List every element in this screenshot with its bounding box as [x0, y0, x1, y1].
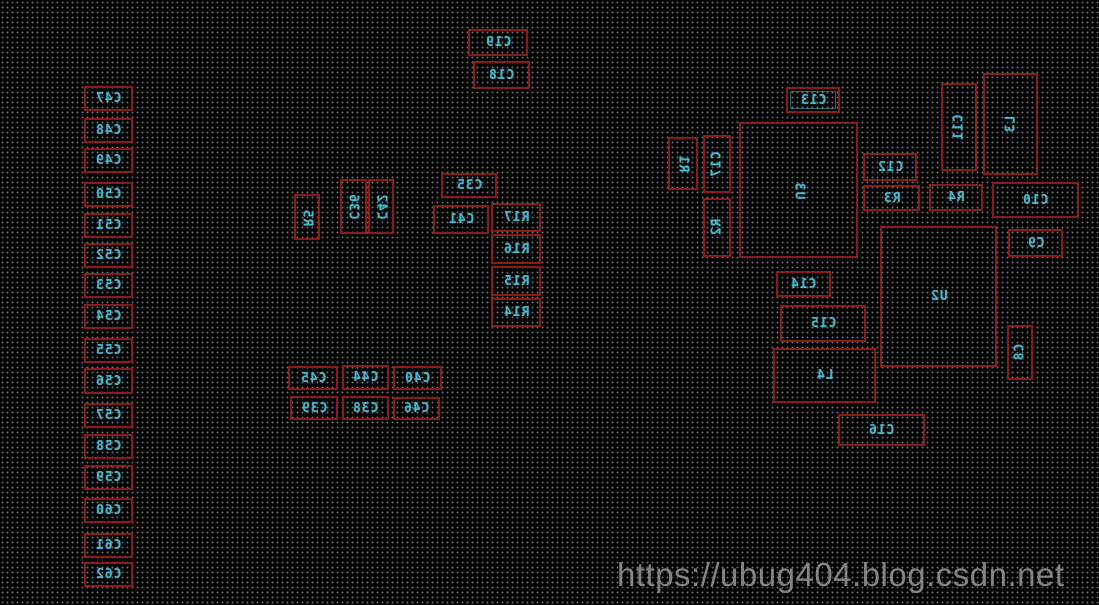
component-footprint-c40[interactable]: C40: [393, 366, 442, 390]
component-footprint-c56[interactable]: C56: [84, 368, 133, 394]
designator-label: C35: [456, 179, 482, 192]
designator-label: C39: [301, 402, 327, 415]
designator-label: C36: [347, 193, 360, 219]
designator-label: C44: [352, 371, 378, 384]
designator-label: C62: [95, 568, 121, 581]
component-footprint-c51[interactable]: C51: [84, 213, 133, 238]
component-footprint-c38[interactable]: C38: [342, 396, 389, 420]
component-footprint-c53[interactable]: C53: [84, 273, 133, 298]
component-footprint-c58[interactable]: C58: [84, 434, 133, 459]
designator-label: C46: [403, 402, 429, 415]
component-footprint-c49[interactable]: C49: [84, 148, 133, 173]
designator-label: L4: [816, 369, 834, 382]
designator-label: C51: [95, 219, 121, 232]
component-footprint-c62[interactable]: C62: [84, 562, 133, 587]
component-footprint-u3[interactable]: U3: [739, 122, 858, 258]
component-footprint-c39[interactable]: C39: [290, 396, 338, 420]
component-footprint-c36[interactable]: C36: [340, 179, 367, 234]
component-footprint-c10[interactable]: C10: [992, 182, 1079, 218]
component-footprint-c44[interactable]: C44: [342, 365, 389, 390]
component-footprint-l3[interactable]: L3: [983, 73, 1038, 175]
designator-label: C56: [95, 375, 121, 388]
component-footprint-r2[interactable]: R2: [703, 198, 731, 257]
designator-label: U2: [930, 290, 948, 303]
component-footprint-c42[interactable]: C42: [368, 179, 394, 234]
designator-label: C19: [485, 36, 511, 49]
designator-label: R14: [503, 306, 529, 319]
component-footprint-c14[interactable]: C14: [776, 271, 831, 297]
designator-label: C47: [95, 92, 121, 105]
designator-label: C38: [352, 402, 378, 415]
component-footprint-c19[interactable]: C19: [468, 29, 528, 56]
designator-label: C58: [95, 440, 121, 453]
designator-label: R1: [677, 155, 690, 173]
designator-label: C41: [448, 213, 474, 226]
pcb-canvas[interactable]: https://ubug404.blog.csdn.net C47C48C49C…: [0, 0, 1099, 605]
designator-label: C57: [95, 409, 121, 422]
component-footprint-c13[interactable]: C13: [786, 87, 840, 113]
component-footprint-c61[interactable]: C61: [84, 533, 133, 558]
designator-label: C8: [1014, 344, 1027, 362]
component-footprint-l4[interactable]: L4: [773, 348, 876, 403]
designator-label: C54: [95, 310, 121, 323]
designator-label: C12: [877, 161, 903, 174]
designator-label: C49: [95, 154, 121, 167]
component-footprint-c8[interactable]: C8: [1007, 325, 1033, 380]
component-footprint-c57[interactable]: C57: [84, 403, 133, 428]
component-footprint-c35[interactable]: C35: [441, 173, 497, 198]
component-footprint-r1[interactable]: R1: [668, 137, 698, 190]
component-footprint-c45[interactable]: C45: [288, 366, 338, 390]
component-footprint-c15[interactable]: C15: [780, 305, 866, 342]
designator-label: C45: [300, 372, 326, 385]
component-footprint-r4[interactable]: R4: [929, 184, 983, 211]
component-footprint-c18[interactable]: C18: [473, 61, 530, 89]
component-footprint-c59[interactable]: C59: [84, 465, 133, 490]
component-footprint-r14[interactable]: R14: [491, 298, 541, 327]
component-footprint-c9[interactable]: C9: [1008, 229, 1063, 257]
component-footprint-c46[interactable]: C46: [393, 397, 440, 420]
designator-label: R16: [503, 243, 529, 256]
designator-label: C16: [868, 424, 894, 437]
designator-label: R5: [301, 208, 314, 226]
component-footprint-c50[interactable]: C50: [84, 182, 133, 207]
designator-label: C42: [375, 193, 388, 219]
component-footprint-r15[interactable]: R15: [491, 266, 541, 296]
designator-label: C50: [95, 188, 121, 201]
designator-label: C11: [952, 114, 965, 140]
designator-label: C48: [95, 124, 121, 137]
component-footprint-c17[interactable]: C17: [703, 135, 731, 193]
designator-label: R17: [503, 211, 529, 224]
component-footprint-r17[interactable]: R17: [491, 203, 541, 232]
designator-label: C18: [488, 69, 514, 82]
designator-label: C52: [95, 249, 121, 262]
component-footprint-u2[interactable]: U2: [880, 226, 997, 367]
component-footprint-c47[interactable]: C47: [84, 86, 133, 111]
designator-label: U3: [792, 181, 805, 199]
component-footprint-c12[interactable]: C12: [863, 153, 917, 181]
component-footprint-c52[interactable]: C52: [84, 243, 133, 268]
component-footprint-c16[interactable]: C16: [838, 414, 925, 446]
designator-label: R3: [883, 192, 901, 205]
designator-label: R15: [503, 275, 529, 288]
designator-label: C9: [1027, 237, 1045, 250]
designator-label: C60: [95, 504, 121, 517]
designator-label: C40: [404, 372, 430, 385]
designator-label: C53: [95, 279, 121, 292]
component-footprint-c11[interactable]: C11: [941, 83, 977, 171]
designator-label: R2: [711, 219, 724, 237]
watermark-url: https://ubug404.blog.csdn.net: [617, 556, 1065, 594]
designator-label: C61: [95, 539, 121, 552]
component-footprint-c54[interactable]: C54: [84, 304, 133, 329]
designator-label: C15: [810, 317, 836, 330]
component-footprint-c48[interactable]: C48: [84, 118, 133, 143]
component-footprint-r3[interactable]: R3: [863, 185, 920, 211]
designator-label: L3: [1004, 115, 1017, 133]
designator-label: C55: [95, 344, 121, 357]
component-footprint-c60[interactable]: C60: [84, 498, 133, 523]
component-footprint-r16[interactable]: R16: [491, 234, 541, 264]
designator-label: C17: [711, 151, 724, 177]
designator-label: C13: [800, 94, 826, 107]
component-footprint-c55[interactable]: C55: [84, 338, 133, 363]
designator-label: R4: [947, 191, 965, 204]
component-footprint-c41[interactable]: C41: [433, 205, 489, 234]
designator-label: C14: [790, 278, 816, 291]
designator-label: C59: [95, 471, 121, 484]
component-footprint-r5[interactable]: R5: [294, 194, 320, 240]
designator-label: C10: [1022, 194, 1048, 207]
